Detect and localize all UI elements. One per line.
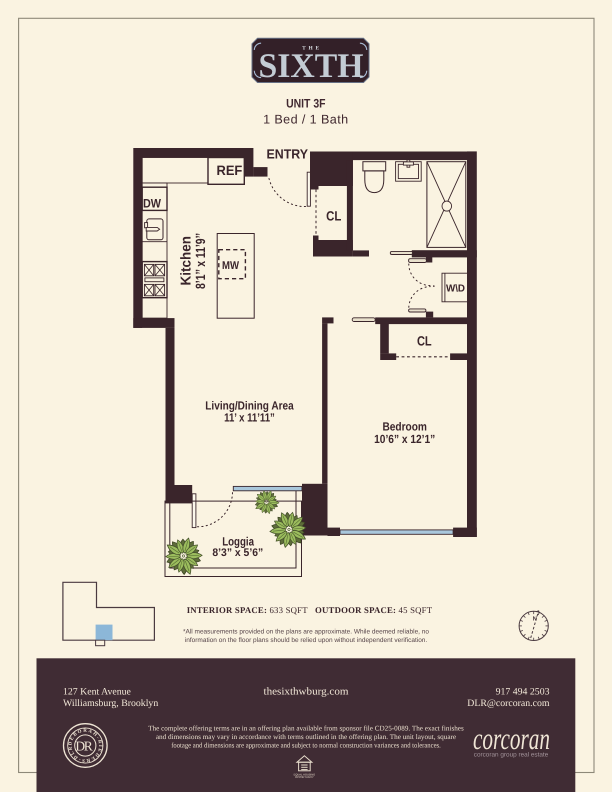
svg-text:INTERIOR SPACE: 633 SQFT OUTDO: INTERIOR SPACE: 633 SQFT OUTDOOR SPACE: …	[187, 605, 433, 615]
svg-text:UNIT 3F: UNIT 3F	[286, 97, 326, 111]
svg-text:10’6” x 12’1”: 10’6” x 12’1”	[374, 432, 435, 446]
svg-text:N: N	[533, 615, 537, 622]
svg-text:Williamsburg, Brooklyn: Williamsburg, Brooklyn	[63, 698, 158, 709]
svg-text:R: R	[84, 738, 93, 753]
svg-text:SIXTH: SIXTH	[259, 47, 364, 85]
svg-text:The complete offering terms ar: The complete offering terms are in an of…	[148, 725, 464, 733]
svg-text:917 494 2503: 917 494 2503	[496, 686, 550, 697]
svg-text:Kitchen: Kitchen	[178, 236, 194, 286]
svg-text:information on the floor plans: information on the floor plans should be…	[185, 637, 428, 644]
svg-text:CL: CL	[417, 333, 432, 348]
svg-text:W\D: W\D	[446, 284, 465, 295]
svg-text:*All measurements provided on: *All measurements provided on the plans …	[183, 629, 429, 636]
svg-text:8’3” x 5’6”: 8’3” x 5’6”	[212, 547, 263, 559]
svg-text:11’ x 11’11”: 11’ x 11’11”	[224, 410, 275, 424]
svg-text:127 Kent Avenue: 127 Kent Avenue	[63, 686, 131, 697]
svg-text:DW: DW	[143, 197, 161, 211]
svg-text:footage and dimensions are app: footage and dimensions are approximate a…	[171, 742, 441, 750]
svg-text:OPPORTUNITY: OPPORTUNITY	[295, 776, 314, 779]
svg-text:1 Bed / 1 Bath: 1 Bed / 1 Bath	[263, 112, 348, 126]
svg-text:thesixthwburg.com: thesixthwburg.com	[264, 686, 349, 697]
svg-text:8’1’’ x 11’9’’: 8’1’’ x 11’9’’	[193, 233, 208, 289]
svg-text:MW: MW	[222, 260, 239, 272]
svg-text:DLR@corcoran.com: DLR@corcoran.com	[467, 698, 550, 709]
svg-text:and dimensions may vary in acc: and dimensions may vary in accordance wi…	[156, 733, 456, 741]
svg-text:REF: REF	[217, 163, 243, 178]
svg-text:CL: CL	[326, 209, 341, 224]
svg-text:corcoran group real estate: corcoran group real estate	[474, 751, 549, 758]
svg-text:ENTRY: ENTRY	[267, 146, 309, 161]
